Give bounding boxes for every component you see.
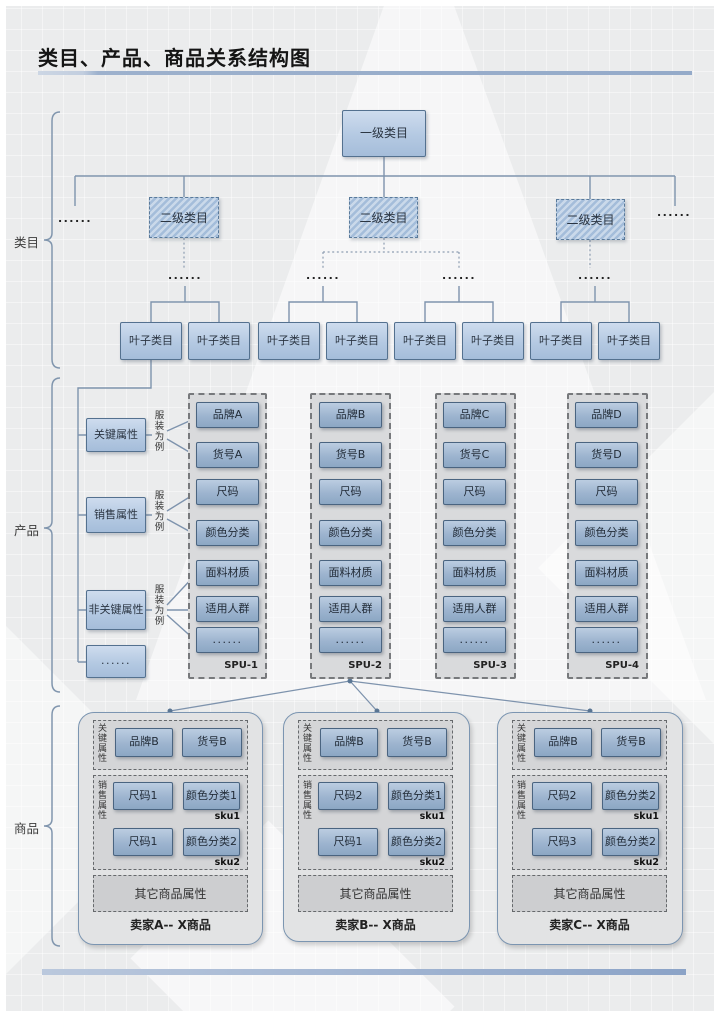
brace-category: [44, 112, 60, 368]
section-braces: [44, 112, 60, 946]
section-label-commodity: 商品: [14, 818, 39, 837]
spu-attr-more: ......: [575, 627, 638, 653]
seller-article: 货号B: [387, 728, 447, 757]
spu-attr: 颜色分类: [443, 520, 506, 546]
sku-size: 尺码1: [113, 828, 173, 856]
fanout-dots: [168, 679, 593, 714]
leaf-category-node: 叶子类目: [188, 322, 250, 360]
spu-attr-more: ......: [443, 627, 506, 653]
spu-attr-more: ......: [196, 627, 259, 653]
spu-attr: 品牌C: [443, 402, 506, 428]
root-category-node: 一级类目: [342, 110, 426, 157]
leaf-category-node: 叶子类目: [120, 322, 182, 360]
spu-attr: 面料材质: [319, 560, 382, 586]
sku-size: 尺码2: [318, 782, 378, 810]
spu-label: SPU-3: [435, 660, 507, 671]
spu-attr: 品牌D: [575, 402, 638, 428]
spu-attr: 尺码: [319, 479, 382, 505]
diagram-page: 类目、产品、商品关系结构图 类目 产品 商品 一级类目 ...... .....…: [0, 0, 720, 1017]
spu-attr: 颜色分类: [319, 520, 382, 546]
sku-size: 尺码2: [532, 782, 592, 810]
sales-attr-vertical-label: 销售属性: [515, 780, 524, 830]
sales-attr-vertical-label: 销售属性: [301, 780, 310, 830]
attr-group-nonkey: 非关键属性: [86, 590, 146, 630]
key-attr-vertical-label: 关键属性: [96, 723, 105, 768]
level2-category-node: 二级类目: [349, 197, 418, 238]
brace-commodity: [44, 706, 60, 946]
sku-tag: sku1: [178, 811, 240, 822]
spu-attr: 尺码: [443, 479, 506, 505]
dotted-links: [184, 238, 590, 268]
attr-group-more: ......: [86, 645, 146, 678]
section-label-product: 产品: [14, 520, 39, 539]
spu-attr: 面料材质: [443, 560, 506, 586]
spu-attr: 货号D: [575, 442, 638, 468]
brace-product: [44, 378, 60, 692]
spu-attr: 尺码: [196, 479, 259, 505]
leaf-category-node: 叶子类目: [258, 322, 320, 360]
spu-attr: 适用人群: [196, 596, 259, 622]
spu-attr: 品牌A: [196, 402, 259, 428]
page-title: 类目、产品、商品关系结构图: [38, 42, 311, 71]
spu-label: SPU-2: [310, 660, 382, 671]
spu-attr: 适用人群: [319, 596, 382, 622]
spu-attr: 适用人群: [575, 596, 638, 622]
example-note: 服装为例: [153, 584, 163, 636]
example-note: 服装为例: [153, 490, 163, 542]
seller-article: 货号B: [601, 728, 661, 757]
sku-tag: sku2: [597, 857, 659, 868]
sku-tag: sku1: [597, 811, 659, 822]
ellipsis-branch: ......: [431, 269, 487, 282]
leaf-category-node: 叶子类目: [326, 322, 388, 360]
ellipsis-branch: ......: [567, 269, 623, 282]
leaf-category-node: 叶子类目: [394, 322, 456, 360]
spu-attr: 面料材质: [196, 560, 259, 586]
spu-attr: 颜色分类: [575, 520, 638, 546]
spu-attr: 尺码: [575, 479, 638, 505]
spu-attr: 品牌B: [319, 402, 382, 428]
other-attrs-box: 其它商品属性: [512, 875, 667, 912]
ellipsis-left: ......: [47, 212, 103, 225]
ellipsis-right: ......: [646, 206, 702, 219]
section-label-category: 类目: [14, 232, 39, 251]
other-attrs-box: 其它商品属性: [298, 875, 453, 912]
leaf-category-node: 叶子类目: [598, 322, 660, 360]
example-note: 服装为例: [153, 410, 163, 462]
spu-label: SPU-1: [188, 660, 258, 671]
sku-size: 尺码1: [318, 828, 378, 856]
leaf-category-node: 叶子类目: [462, 322, 524, 360]
key-attr-vertical-label: 关键属性: [301, 723, 310, 768]
sku-size: 尺码3: [532, 828, 592, 856]
sku-tag: sku1: [383, 811, 445, 822]
seller-card-label: 卖家C-- X商品: [517, 916, 662, 933]
seller-brand: 品牌B: [534, 728, 592, 757]
leaf-category-node: 叶子类目: [530, 322, 592, 360]
sku-color: 颜色分类1: [388, 782, 445, 810]
sku-color: 颜色分类2: [602, 782, 659, 810]
seller-brand: 品牌B: [320, 728, 378, 757]
sku-color: 颜色分类2: [388, 828, 445, 856]
spu-attr: 面料材质: [575, 560, 638, 586]
spu-attr-more: ......: [319, 627, 382, 653]
key-attr-vertical-label: 关键属性: [515, 723, 524, 768]
sales-attr-vertical-label: 销售属性: [96, 780, 105, 830]
ellipsis-branch: ......: [295, 269, 351, 282]
seller-article: 货号B: [182, 728, 242, 757]
spu-attr: 货号A: [196, 442, 259, 468]
level2-category-node: 二级类目: [556, 199, 625, 240]
sku-tag: sku2: [178, 857, 240, 868]
seller-brand: 品牌B: [115, 728, 173, 757]
spu-attr: 货号B: [319, 442, 382, 468]
attr-group-key: 关键属性: [86, 418, 146, 452]
spu-attr: 适用人群: [443, 596, 506, 622]
seller-card-label: 卖家A-- X商品: [98, 916, 243, 933]
ellipsis-branch: ......: [157, 269, 213, 282]
sku-color: 颜色分类2: [602, 828, 659, 856]
level2-category-node: 二级类目: [149, 197, 219, 238]
seller-card-label: 卖家B-- X商品: [303, 916, 448, 933]
title-divider: [38, 71, 692, 75]
spu-attr: 颜色分类: [196, 520, 259, 546]
attr-group-sales: 销售属性: [86, 497, 146, 533]
spu-attr: 货号C: [443, 442, 506, 468]
sku-size: 尺码1: [113, 782, 173, 810]
sku-tag: sku2: [383, 857, 445, 868]
bottom-divider: [42, 969, 686, 975]
sku-color: 颜色分类2: [183, 828, 240, 856]
spu-label: SPU-4: [567, 660, 639, 671]
sku-color: 颜色分类1: [183, 782, 240, 810]
other-attrs-box: 其它商品属性: [93, 875, 248, 912]
